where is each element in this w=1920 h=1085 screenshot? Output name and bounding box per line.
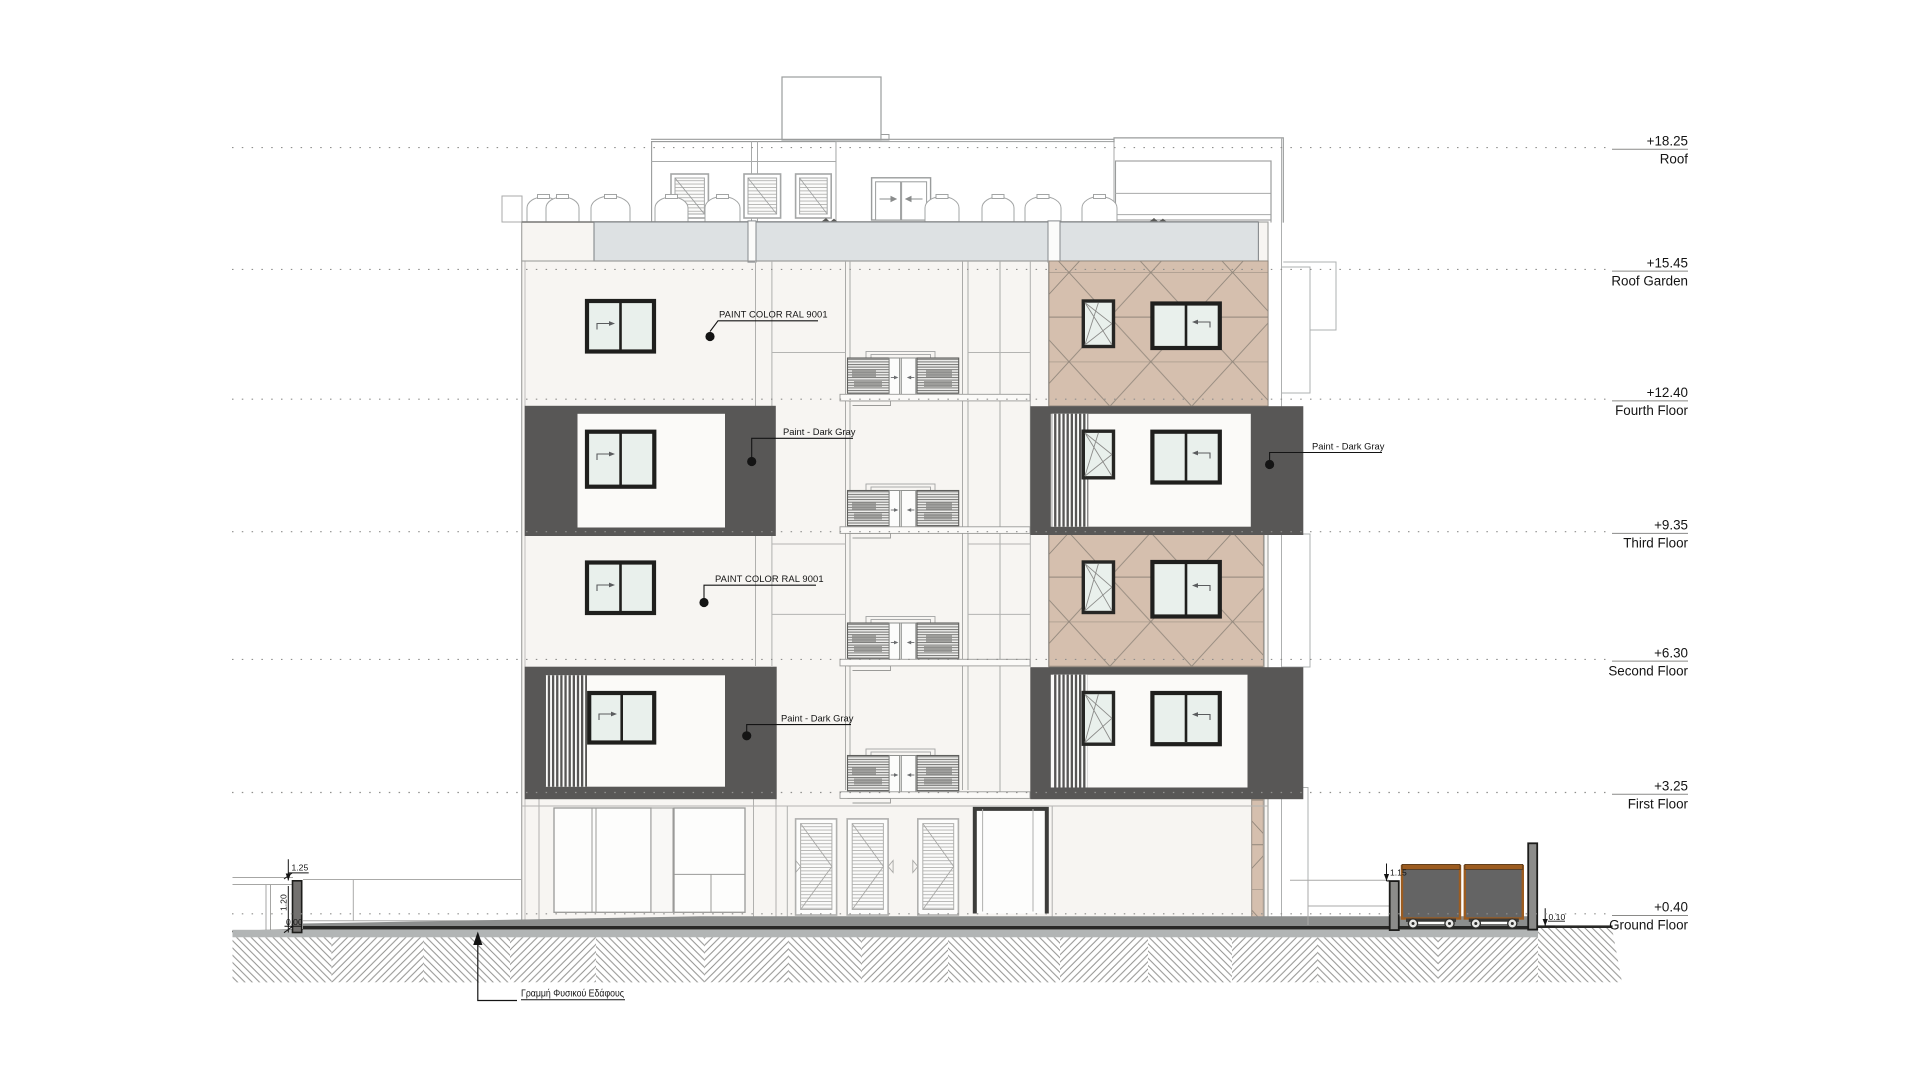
svg-text:PAINT COLOR RAL 9001: PAINT COLOR RAL 9001 <box>715 573 824 584</box>
svg-text:1.15: 1.15 <box>1390 867 1407 877</box>
svg-text:+15.45: +15.45 <box>1647 255 1688 270</box>
svg-text:First Floor: First Floor <box>1628 796 1689 811</box>
svg-text:0.00: 0.00 <box>286 917 303 927</box>
svg-text:Paint - Dark Gray: Paint - Dark Gray <box>1312 440 1385 451</box>
svg-text:Third Floor: Third Floor <box>1623 536 1688 551</box>
svg-text:Roof: Roof <box>1660 152 1689 167</box>
svg-text:+3.25: +3.25 <box>1654 778 1688 793</box>
svg-text:Ground Floor: Ground Floor <box>1609 918 1688 933</box>
svg-text:Paint - Dark Gray: Paint - Dark Gray <box>781 712 854 723</box>
svg-text:+18.25: +18.25 <box>1647 134 1688 149</box>
svg-text:Paint - Dark Gray: Paint - Dark Gray <box>783 426 856 437</box>
svg-text:1.25: 1.25 <box>292 863 309 873</box>
svg-text:Second Floor: Second Floor <box>1608 663 1688 678</box>
svg-text:+9.35: +9.35 <box>1654 518 1688 533</box>
svg-text:+0.40: +0.40 <box>1654 900 1688 915</box>
svg-text:PAINT COLOR RAL 9001: PAINT COLOR RAL 9001 <box>719 309 828 320</box>
svg-text:Fourth Floor: Fourth Floor <box>1615 403 1688 418</box>
svg-text:Roof Garden: Roof Garden <box>1611 273 1688 288</box>
svg-text:+12.40: +12.40 <box>1647 385 1688 400</box>
svg-text:+6.30: +6.30 <box>1654 645 1688 660</box>
svg-text:Γραμμή Φυσικού Εδάφους: Γραμμή Φυσικού Εδάφους <box>521 988 624 1000</box>
svg-text:1.20: 1.20 <box>279 894 289 911</box>
svg-text:0.10: 0.10 <box>1549 912 1566 922</box>
